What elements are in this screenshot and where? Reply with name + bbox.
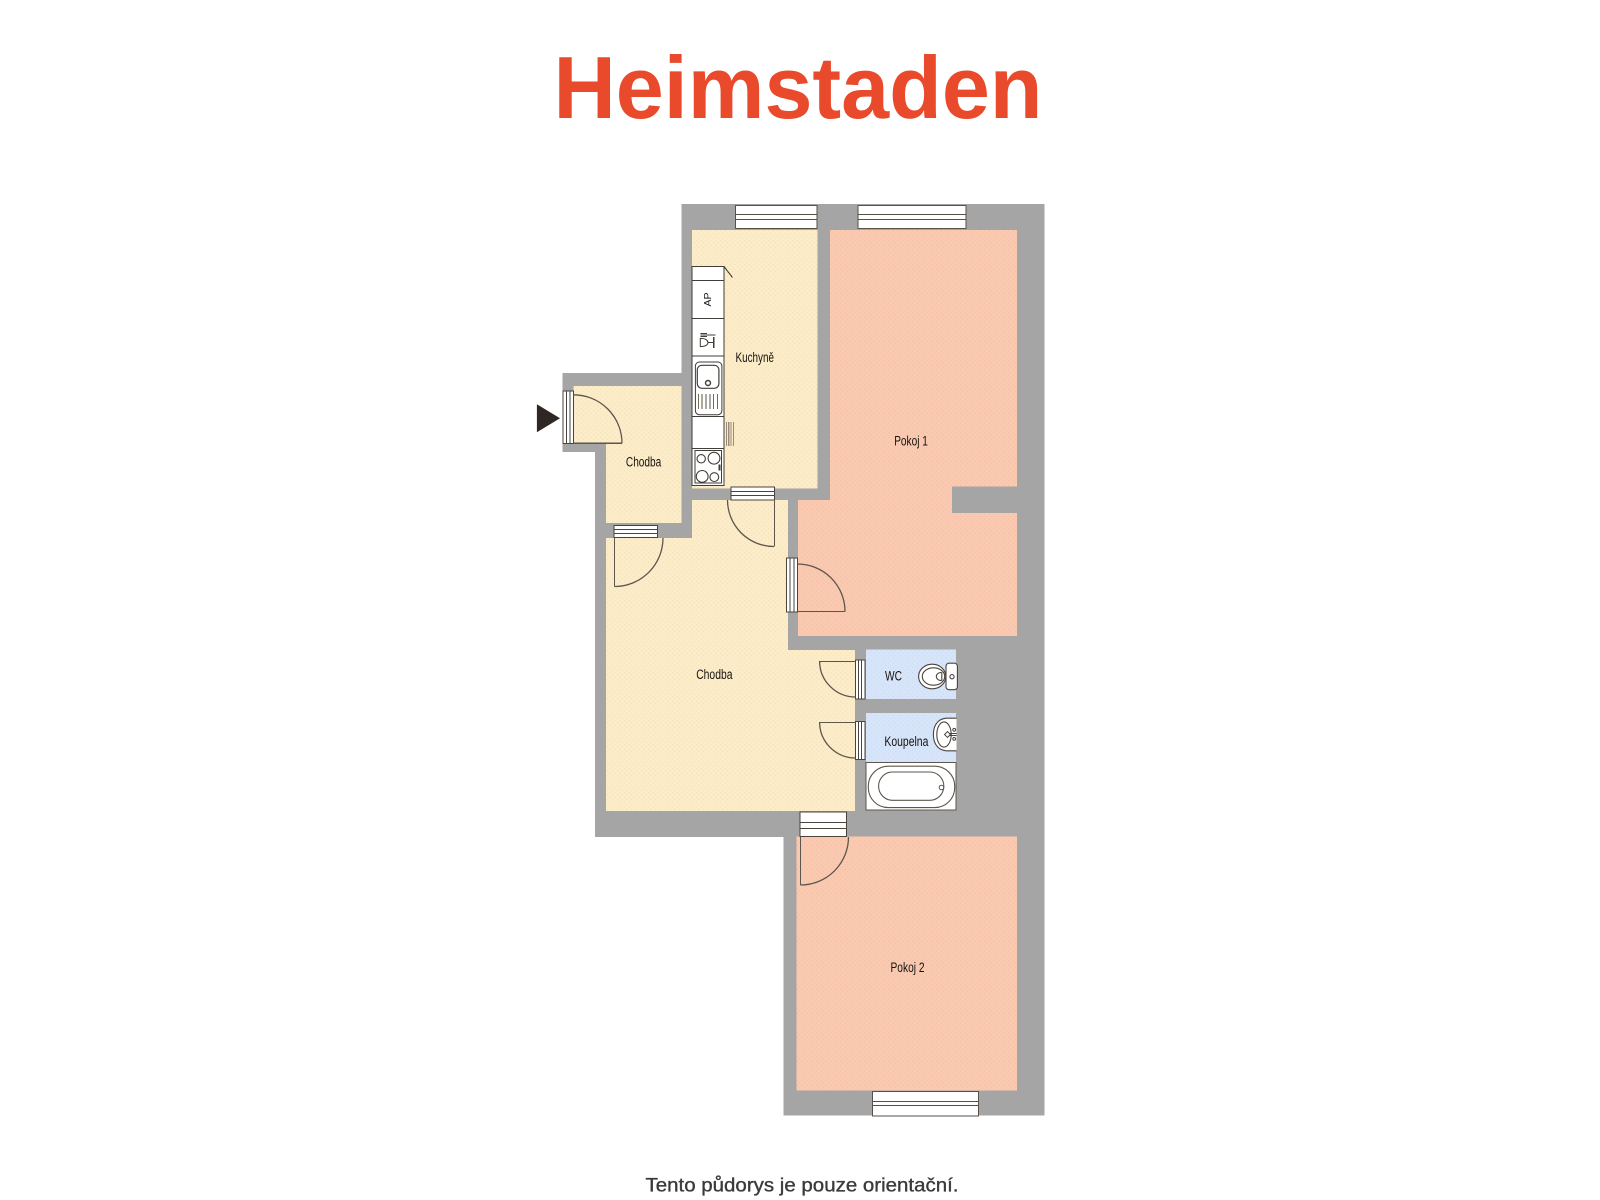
svg-text:Chodba: Chodba [626,455,662,470]
svg-text:Pokoj 2: Pokoj 2 [891,960,925,975]
svg-text:Kuchyně: Kuchyně [736,350,775,365]
svg-text:Koupelna: Koupelna [884,734,928,749]
svg-text:WC: WC [885,668,902,683]
svg-text:Pokoj 1: Pokoj 1 [894,433,928,448]
svg-text:AP: AP [702,292,714,306]
svg-text:Chodba: Chodba [696,667,733,682]
svg-text:Tento půdorys je pouze orienta: Tento půdorys je pouze orientační. [646,1175,959,1196]
svg-text:Heimstaden: Heimstaden [554,38,1043,137]
